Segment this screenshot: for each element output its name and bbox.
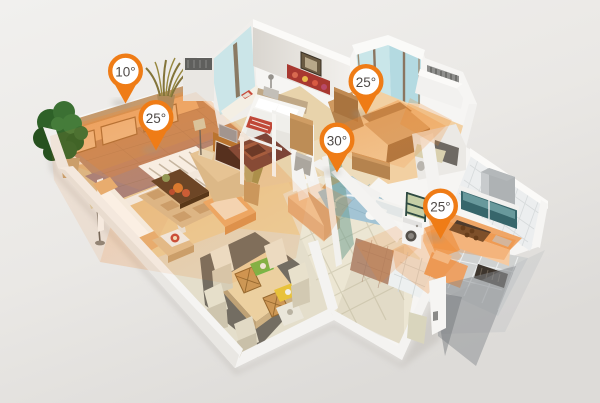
svg-text:25°: 25° (356, 75, 376, 90)
svg-text:25°: 25° (146, 111, 166, 126)
svg-text:10°: 10° (115, 65, 135, 80)
svg-text:30°: 30° (327, 134, 347, 149)
svg-text:25°: 25° (430, 200, 450, 215)
